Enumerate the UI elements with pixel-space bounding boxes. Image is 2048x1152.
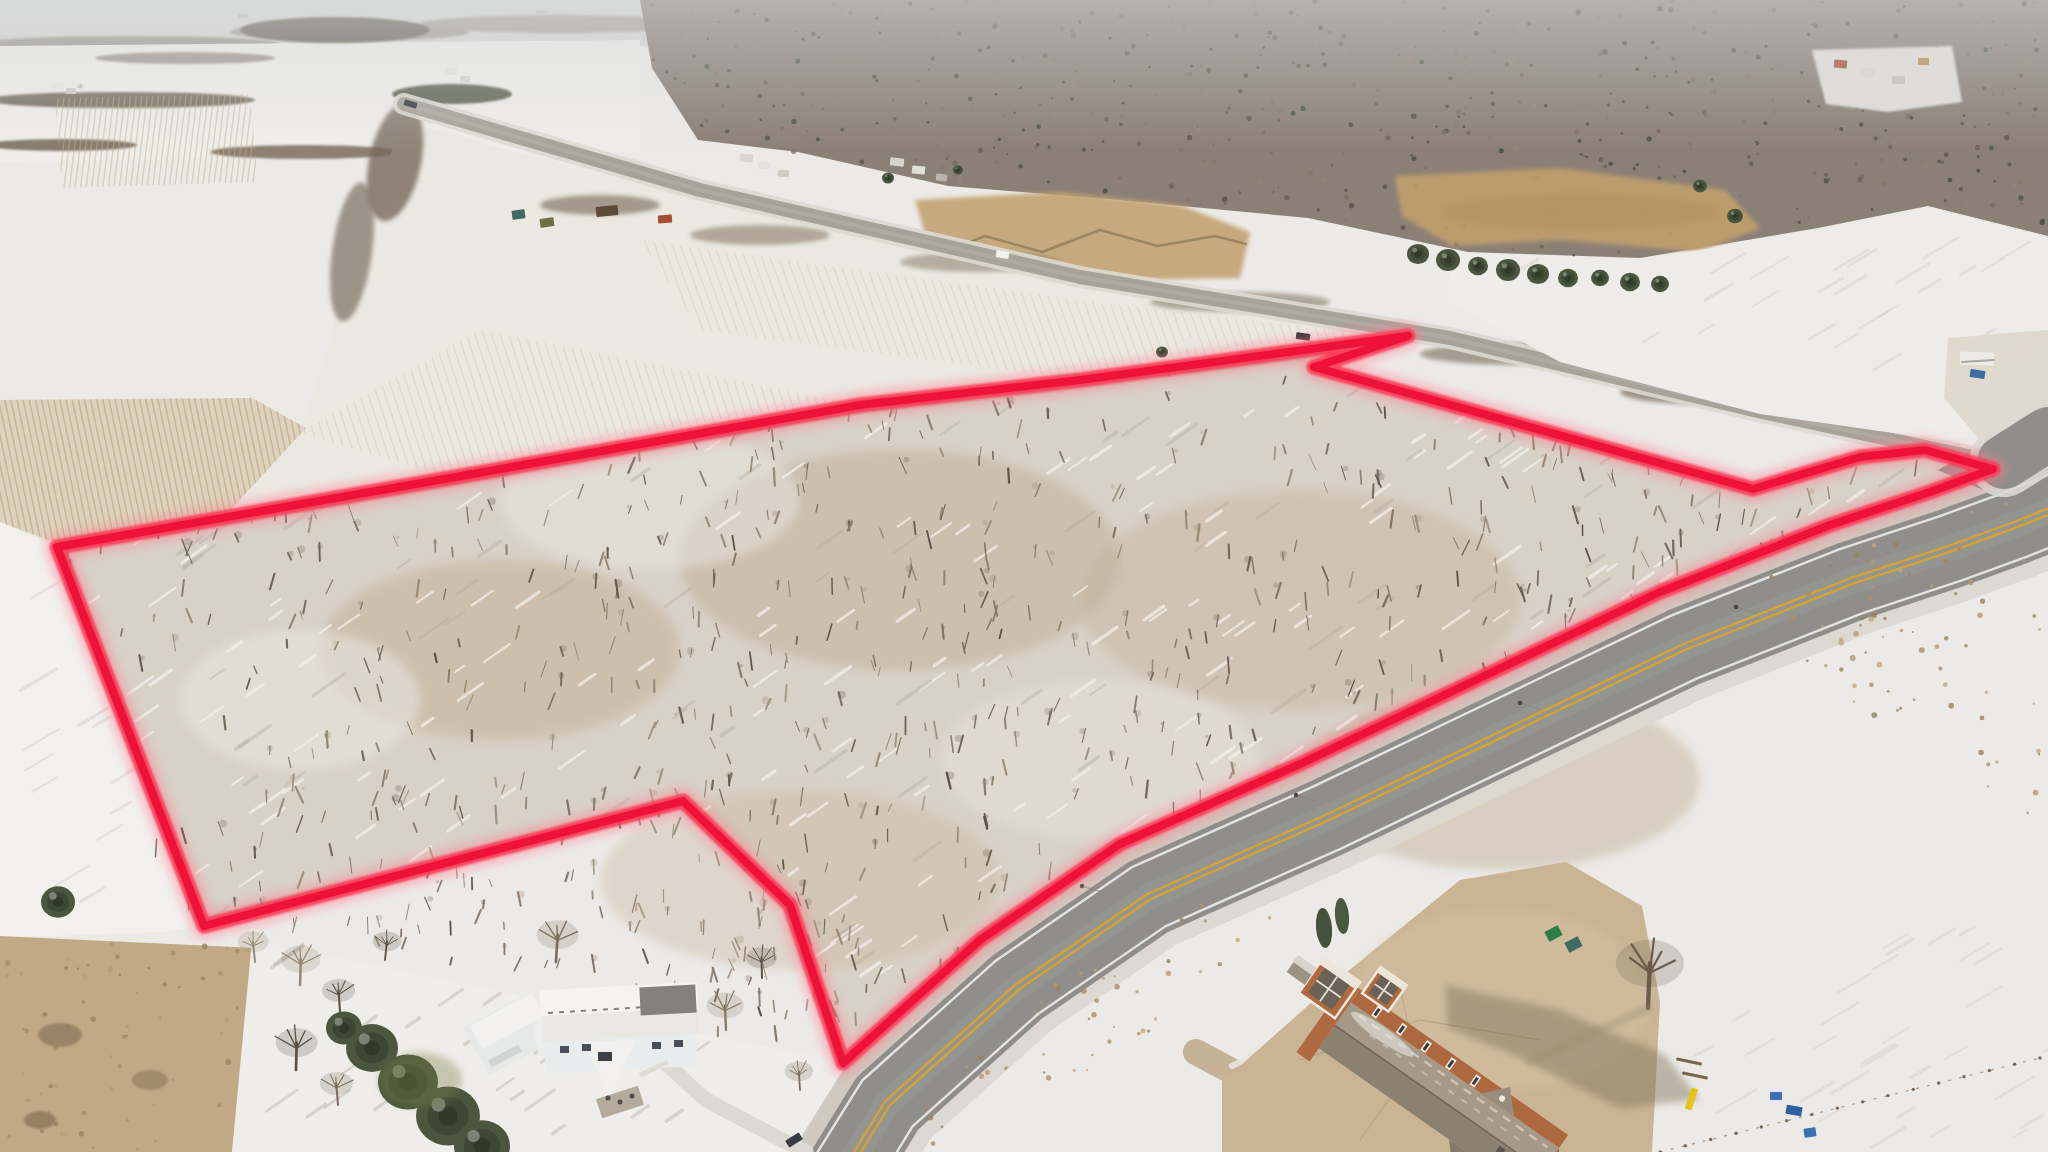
rock-outcrop	[132, 1070, 168, 1090]
evergreen-tree	[1407, 244, 1429, 264]
evergreen-tree	[1651, 276, 1669, 293]
evergreen-tree	[1436, 249, 1460, 271]
evergreen-golden	[378, 1052, 462, 1108]
evergreen-tree	[326, 1011, 362, 1044]
evergreen-tree	[1558, 269, 1578, 287]
evergreen-tree	[1468, 257, 1488, 275]
evergreen-tree	[953, 165, 963, 174]
evergreen-tree	[1527, 264, 1549, 284]
camper-trailer	[1960, 351, 1994, 365]
top-haze	[0, 0, 2048, 150]
roadside-trees	[690, 225, 830, 245]
road-ne	[2004, 434, 2048, 462]
evergreen-tree	[1496, 259, 1520, 281]
rock-outcrop	[24, 1111, 56, 1129]
evergreen-tree	[882, 172, 894, 183]
evergreen-tree	[1620, 273, 1640, 291]
evergreen-tree	[41, 886, 75, 917]
rock-outcrop	[38, 1023, 82, 1047]
aerial-photo-svg	[0, 0, 2048, 1152]
evergreen-tree	[1727, 209, 1743, 224]
marsh-shade	[1440, 194, 1720, 230]
evergreen-tree	[1693, 180, 1707, 193]
evergreen-tree	[1591, 270, 1609, 287]
aerial-photo	[0, 0, 2048, 1152]
